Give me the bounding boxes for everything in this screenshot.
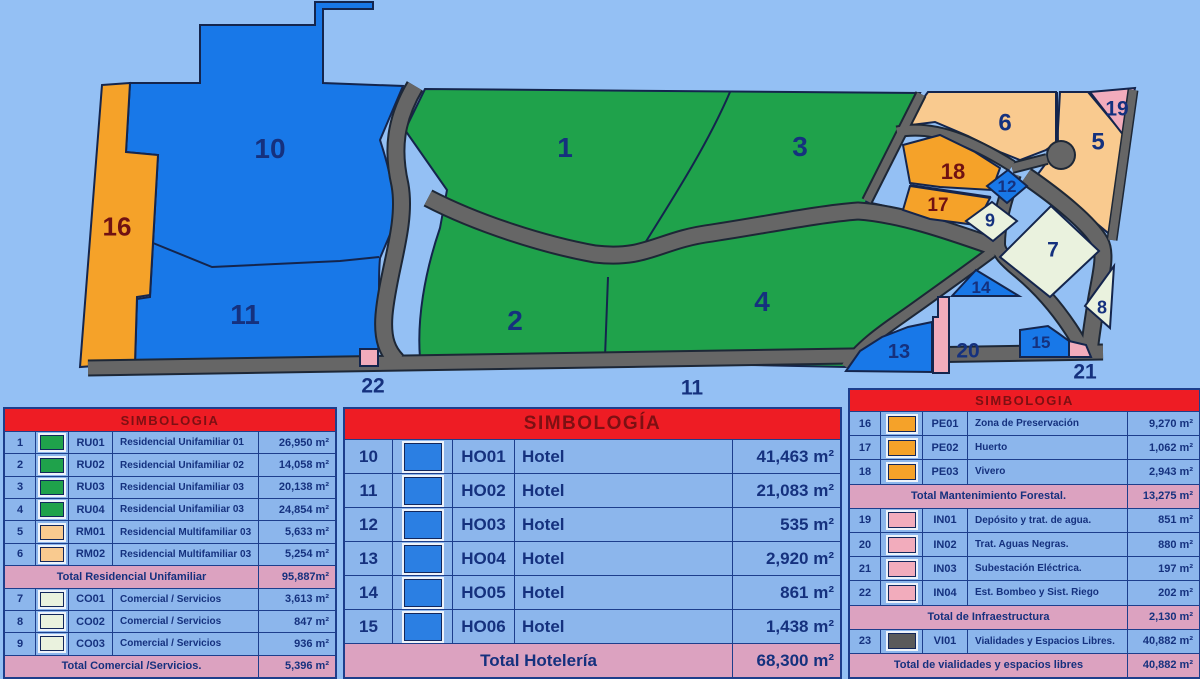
legend-total-label: Total Residencial Unifamiliar [5,566,258,587]
legend-swatch-cell [880,509,922,532]
map-label-12: 12 [998,177,1017,196]
legend-area: 1,062 m² [1127,436,1199,459]
legend-area: 14,058 m² [258,454,335,475]
map-label-8: 8 [1097,297,1107,317]
legend-description: Hotel [514,610,732,643]
legend-code: HO01 [452,440,514,473]
map-label-20: 20 [956,340,979,363]
legend-code: RM01 [68,521,112,542]
legend-color-swatch [404,477,442,505]
legend-code: HO03 [452,508,514,541]
legend-color-swatch [404,613,442,641]
legend-code: RU01 [68,432,112,453]
legend-code: HO05 [452,576,514,609]
legend-total-label: Total Mantenimiento Forestal. [850,485,1127,508]
legend-description: Hotel [514,440,732,473]
legend-code: CO03 [68,633,112,654]
legend-area: 20,138 m² [258,477,335,498]
legend-table-residencial: SIMBOLOGIA 1RU01Residencial Unifamiliar … [3,407,337,679]
legend-table-forestal-infra: SIMBOLOGIA 16PE01Zona de Preservación9,2… [848,388,1200,679]
legend-row: 20IN02Trat. Aguas Negras.880 m² [850,532,1199,556]
map-label-11: 11 [681,377,704,400]
legend-total-area: 5,396 m² [258,656,335,677]
legend-color-swatch [40,614,64,629]
legend-color-swatch [40,480,64,495]
legend-description: Hotel [514,576,732,609]
map-label-13: 13 [888,341,910,363]
legend-description: Residencial Multifamiliar 03 [112,521,258,542]
legend-total-label: Total Comercial /Servicios. [5,656,258,677]
legend-color-swatch [404,443,442,471]
legend-area: 5,254 m² [258,544,335,565]
legend-code: HO02 [452,474,514,507]
legend-parcel-number: 1 [5,432,35,453]
map-label-17: 17 [927,195,948,216]
legend-color-swatch [404,579,442,607]
legend-parcel-number: 13 [345,542,392,575]
legend-parcel-number: 3 [5,477,35,498]
legend-parcel-number: 4 [5,499,35,520]
legend-color-swatch [40,636,64,651]
legend-description: Residencial Unifamiliar 02 [112,454,258,475]
legend-parcel-number: 5 [5,521,35,542]
legend-parcel-number: 19 [850,509,880,532]
legend-area: 5,633 m² [258,521,335,542]
map-label-10: 10 [254,133,285,164]
legend-color-swatch [888,512,916,528]
legend-swatch-cell [880,557,922,580]
legend-swatch-cell [392,542,452,575]
legend-total-label: Total de Infraestructura [850,606,1127,629]
legend-color-swatch [888,585,916,601]
legend-code: RU04 [68,499,112,520]
legend-row: 23VI01Vialidades y Espacios Libres.40,88… [850,629,1199,653]
legend-code: PE02 [922,436,967,459]
legend-table-hoteleria: SIMBOLOGÍA 10HO01Hotel41,463 m²11HO02Hot… [343,407,842,679]
legend-parcel-number: 23 [850,630,880,653]
land-use-plan-page: { "colors": { "page_background": "#94C0F… [0,0,1200,675]
legend-description: Vialidades y Espacios Libres. [967,630,1127,653]
legend-total-area: 95,887m² [258,566,335,587]
legend-color-swatch [404,545,442,573]
legend-title: SIMBOLOGIA [5,409,335,432]
legend-parcel-number: 15 [345,610,392,643]
legend-row: 16PE01Zona de Preservación9,270 m² [850,412,1199,435]
legend-total-row: Total de vialidades y espacios libres40,… [850,653,1199,677]
map-label-22: 22 [361,375,384,398]
legend-area: 197 m² [1127,557,1199,580]
legend-description: Vivero [967,460,1127,483]
legend-color-swatch [40,502,64,517]
map-label-7: 7 [1047,239,1059,262]
legend-row: 12HO03Hotel535 m² [345,507,840,541]
map-label-16: 16 [103,211,132,241]
legend-description: Comercial / Servicios [112,589,258,610]
legend-area: 9,270 m² [1127,412,1199,435]
legend-code: IN03 [922,557,967,580]
legend-description: Depósito y trat. de agua. [967,509,1127,532]
legend-swatch-cell [880,581,922,604]
legend-code: CO02 [68,611,112,632]
legend-code: HO06 [452,610,514,643]
legend-description: Huerto [967,436,1127,459]
legend-code: CO01 [68,589,112,610]
legend-swatch-cell [35,611,68,632]
legend-color-swatch [40,592,64,607]
map-label-15: 15 [1032,333,1051,352]
legend-area: 2,920 m² [732,542,840,575]
legend-code: IN04 [922,581,967,604]
legend-parcel-number: 14 [345,576,392,609]
legend-area: 851 m² [1127,509,1199,532]
legend-total-label: Total de vialidades y espacios libres [850,654,1127,677]
legend-swatch-cell [35,432,68,453]
legend-color-swatch [40,458,64,473]
legend-area: 1,438 m² [732,610,840,643]
legend-area: 535 m² [732,508,840,541]
map-label-21: 21 [1073,361,1097,384]
legend-title: SIMBOLOGÍA [345,409,840,440]
legend-description: Residencial Unifamiliar 01 [112,432,258,453]
legend-code: PE01 [922,412,967,435]
map-label-11: 11 [230,299,260,330]
legend-parcel-number: 17 [850,436,880,459]
legend-row: 14HO05Hotel861 m² [345,575,840,609]
legend-code: RM02 [68,544,112,565]
legend-parcel-number: 7 [5,589,35,610]
legend-row: 6RM02Residencial Multifamiliar 035,254 m… [5,543,335,565]
cul-de-sac [1048,142,1074,168]
legend-description: Hotel [514,542,732,575]
legend-description: Trat. Aguas Negras. [967,533,1127,556]
legend-area: 880 m² [1127,533,1199,556]
legend-total-area: 40,882 m² [1127,654,1199,677]
map-label-19: 19 [1105,98,1128,121]
legend-color-swatch [888,561,916,577]
legend-swatch-cell [35,454,68,475]
map-label-14: 14 [972,278,991,297]
legend-parcel-number: 6 [5,544,35,565]
legend-swatch-cell [392,440,452,473]
legend-total-area: 68,300 m² [732,644,840,677]
legend-row: 8CO02Comercial / Servicios847 m² [5,610,335,632]
parcel-hotel-10-11 [126,2,403,364]
legend-total-area: 2,130 m² [1127,606,1199,629]
legend-description: Zona de Preservación [967,412,1127,435]
legend-area: 24,854 m² [258,499,335,520]
legend-swatch-cell [880,436,922,459]
legend-description: Comercial / Servicios [112,633,258,654]
legend-swatch-cell [392,576,452,609]
legend-total-row: Total Mantenimiento Forestal.13,275 m² [850,484,1199,508]
legend-total-label: Total Hotelería [345,644,732,677]
legend-area: 936 m² [258,633,335,654]
legend-code: IN01 [922,509,967,532]
legend-parcel-number: 22 [850,581,880,604]
legend-row: 11HO02Hotel21,083 m² [345,473,840,507]
legend-title: SIMBOLOGIA [850,390,1199,412]
legend-row: 13HO04Hotel2,920 m² [345,541,840,575]
legend-area: 26,950 m² [258,432,335,453]
legend-swatch-cell [35,589,68,610]
legend-parcel-number: 12 [345,508,392,541]
legend-description: Subestación Eléctrica. [967,557,1127,580]
map-label-18: 18 [941,159,965,184]
legend-row: 2RU02Residencial Unifamiliar 0214,058 m² [5,453,335,475]
legend-row: 7CO01Comercial / Servicios3,613 m² [5,588,335,610]
legend-parcel-number: 11 [345,474,392,507]
legend-total-row: Total Comercial /Servicios.5,396 m² [5,655,335,677]
legend-swatch-cell [880,630,922,653]
legend-total-row: Total de Infraestructura2,130 m² [850,605,1199,629]
legend-swatch-cell [880,412,922,435]
legend-total-row: Total Residencial Unifamiliar95,887m² [5,565,335,587]
legend-code: VI01 [922,630,967,653]
legend-color-swatch [40,547,64,562]
legend-code: IN02 [922,533,967,556]
legend-area: 3,613 m² [258,589,335,610]
legend-area: 202 m² [1127,581,1199,604]
map-label-1: 1 [557,132,573,163]
legend-color-swatch [888,440,916,456]
legend-total-area: 13,275 m² [1127,485,1199,508]
legend-color-swatch [888,633,916,649]
legend-description: Hotel [514,474,732,507]
legend-total-row: Total Hotelería68,300 m² [345,643,840,677]
legend-code: RU03 [68,477,112,498]
map-label-9: 9 [985,210,995,230]
legend-code: HO04 [452,542,514,575]
legend-description: Residencial Unifamiliar 03 [112,477,258,498]
legend-area: 847 m² [258,611,335,632]
legend-area: 21,083 m² [732,474,840,507]
legend-color-swatch [888,537,916,553]
legend-area: 861 m² [732,576,840,609]
legend-swatch-cell [35,521,68,542]
legend-swatch-cell [392,610,452,643]
legend-parcel-number: 21 [850,557,880,580]
legend-parcel-number: 16 [850,412,880,435]
divider-6-5 [1057,92,1058,143]
legend-area: 2,943 m² [1127,460,1199,483]
legend-parcel-number: 10 [345,440,392,473]
legend-row: 10HO01Hotel41,463 m² [345,440,840,473]
legend-row: 4RU04Residencial Unifamiliar 0324,854 m² [5,498,335,520]
map-label-4: 4 [754,286,770,317]
legend-color-swatch [888,416,916,432]
legend-row: 22IN04Est. Bombeo y Sist. Riego202 m² [850,580,1199,604]
legend-description: Residencial Unifamiliar 03 [112,499,258,520]
legend-swatch-cell [880,460,922,483]
legend-swatch-cell [35,477,68,498]
legend-code: PE03 [922,460,967,483]
map-label-6: 6 [998,110,1011,137]
legend-description: Residencial Multifamiliar 03 [112,544,258,565]
legend-swatch-cell [35,499,68,520]
map-label-5: 5 [1091,129,1104,156]
legend-area: 40,882 m² [1127,630,1199,653]
legend-parcel-number: 8 [5,611,35,632]
legend-row: 3RU03Residencial Unifamiliar 0320,138 m² [5,476,335,498]
legend-swatch-cell [35,544,68,565]
legend-row: 5RM01Residencial Multifamiliar 035,633 m… [5,520,335,542]
legend-area: 41,463 m² [732,440,840,473]
legend-row: 18PE03Vivero2,943 m² [850,459,1199,483]
legend-parcel-number: 20 [850,533,880,556]
legend-color-swatch [888,464,916,480]
legend-row: 1RU01Residencial Unifamiliar 0126,950 m² [5,432,335,453]
legend-swatch-cell [880,533,922,556]
legend-parcel-number: 18 [850,460,880,483]
legend-row: 19IN01Depósito y trat. de agua.851 m² [850,508,1199,532]
legend-color-swatch [40,435,64,450]
legend-description: Est. Bombeo y Sist. Riego [967,581,1127,604]
map-label-3: 3 [792,131,808,162]
legend-description: Hotel [514,508,732,541]
legend-row: 9CO03Comercial / Servicios936 m² [5,632,335,654]
legend-parcel-number: 2 [5,454,35,475]
legend-parcel-number: 9 [5,633,35,654]
map-label-2: 2 [507,305,523,336]
legend-description: Comercial / Servicios [112,611,258,632]
parcel-22-infra [360,349,378,366]
parcel-20-infra [933,297,949,373]
legend-swatch-cell [392,474,452,507]
legend-row: 21IN03Subestación Eléctrica.197 m² [850,556,1199,580]
legend-row: 17PE02Huerto1,062 m² [850,435,1199,459]
legend-swatch-cell [392,508,452,541]
legend-color-swatch [40,525,64,540]
legend-color-swatch [404,511,442,539]
legend-code: RU02 [68,454,112,475]
legend-swatch-cell [35,633,68,654]
parcel-map: 1234101116561918171297814132015212211 [0,0,1200,405]
legend-row: 15HO06Hotel1,438 m² [345,609,840,643]
